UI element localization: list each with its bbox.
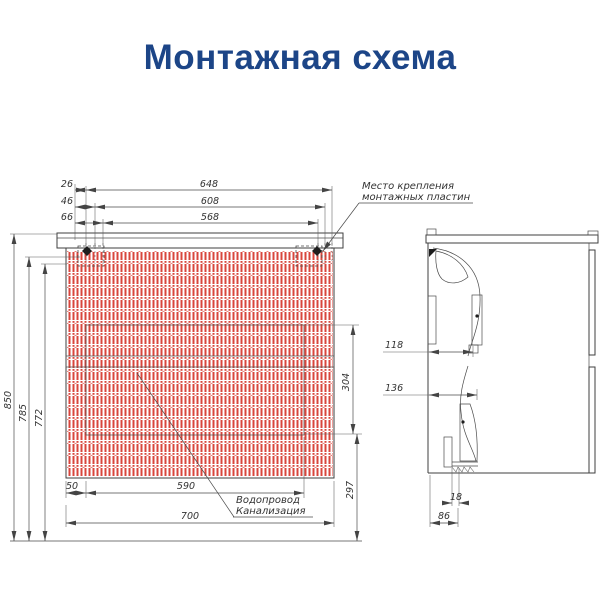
dim-648: 648 xyxy=(200,179,218,190)
wall-rail-lower xyxy=(444,437,452,467)
lower-curve-profile xyxy=(460,366,476,461)
side-countertop xyxy=(426,235,598,243)
mounting-label-line1: Место крепления xyxy=(362,181,454,192)
rail-hatch-marks xyxy=(452,467,474,472)
cabinet-front-hatch xyxy=(67,251,333,477)
dim-46: 46 xyxy=(61,196,73,207)
dim-850: 850 xyxy=(3,391,14,409)
mounting-leader-line xyxy=(323,203,359,251)
plumbing-label-line2: Канализация xyxy=(236,506,306,517)
side-lower-drawer-front xyxy=(589,367,595,473)
front-view xyxy=(57,233,343,478)
plumbing-label-line1: Водопровод xyxy=(236,495,300,506)
lower-bracket xyxy=(460,404,477,461)
diagram-canvas: 26 648 46 608 66 568 Место крепления мон… xyxy=(0,0,600,600)
dim-568: 568 xyxy=(201,212,219,223)
dim-304: 304 xyxy=(341,373,352,391)
dim-86: 86 xyxy=(438,511,450,522)
upper-curve-profile xyxy=(433,248,480,356)
dim-590: 590 xyxy=(177,481,195,492)
dim-66: 66 xyxy=(61,212,73,223)
dim-785: 785 xyxy=(18,404,29,422)
dim-118: 118 xyxy=(385,340,403,351)
dim-136: 136 xyxy=(385,383,403,394)
wall-rail-upper xyxy=(428,296,436,344)
top-dimensions: 26 648 46 608 66 568 xyxy=(61,179,332,246)
side-dimensions: 118 136 18 86 xyxy=(383,340,477,527)
dim-18: 18 xyxy=(450,492,462,503)
dim-608: 608 xyxy=(201,196,219,207)
dim-772: 772 xyxy=(34,409,45,427)
side-upper-drawer-front xyxy=(589,250,595,355)
dim-700: 700 xyxy=(181,511,199,522)
side-view: 118 136 18 86 xyxy=(383,229,598,527)
basin-section xyxy=(436,251,468,283)
mounting-label: Место крепления монтажных пластин xyxy=(323,181,473,251)
dim-26: 26 xyxy=(61,179,73,190)
dim-297: 297 xyxy=(345,481,356,499)
mounting-scheme-page: Монтажная схема xyxy=(0,0,600,600)
dim-50: 50 xyxy=(66,481,78,492)
mounting-label-line2: монтажных пластин xyxy=(362,192,471,203)
